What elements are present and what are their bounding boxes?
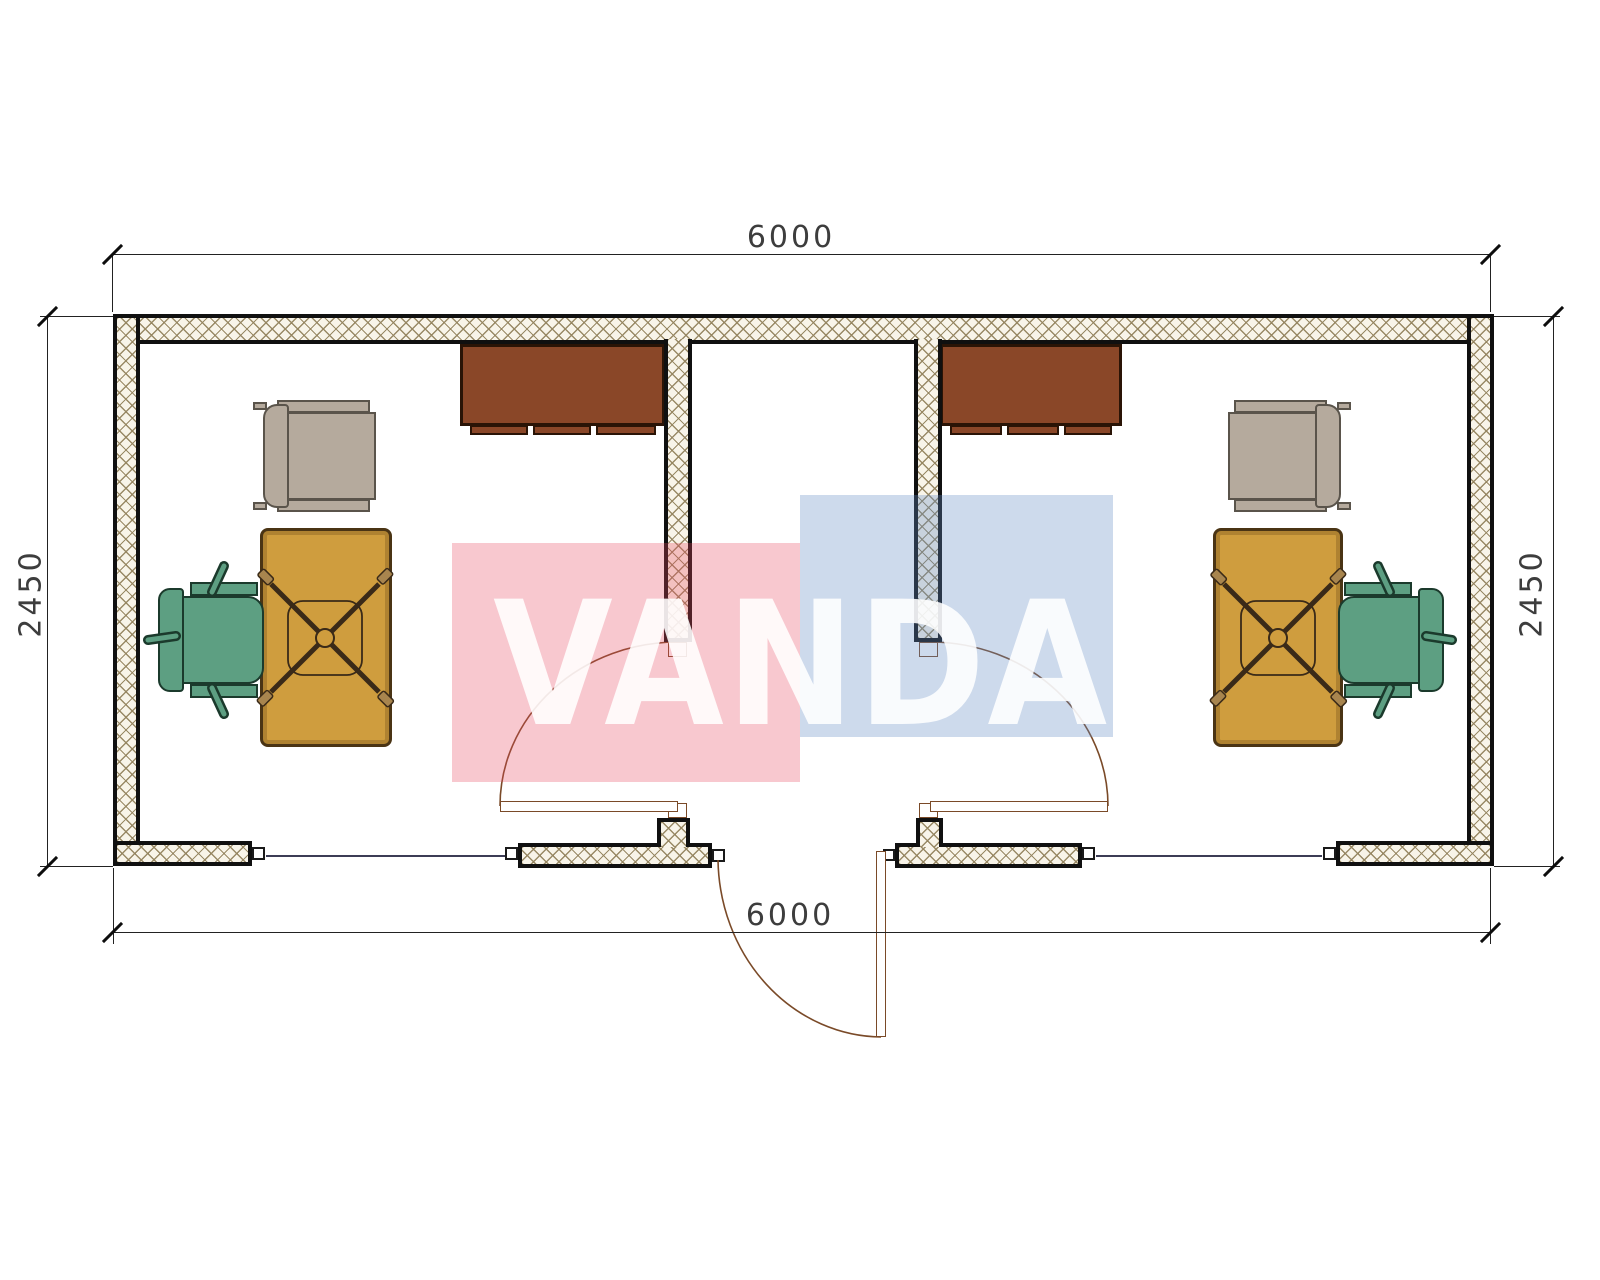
office-chair-back [1418,588,1444,692]
visitor-chair-back [263,404,289,508]
wall-bottom-left-corner [113,841,252,866]
wall-bottom-right-corner [1336,841,1494,866]
cabinet-door [1064,425,1112,435]
office-chair-armrest [190,582,258,596]
cabinet-door [533,425,591,435]
dim-label-bottom: 6000 [710,898,870,933]
cabinet [460,344,665,426]
visitor-chair-leg [1337,502,1351,510]
cabinet [940,344,1122,426]
dim-label-top: 6000 [711,220,871,255]
wall-left [113,314,140,866]
wall-right [1467,314,1494,866]
dim-line-right [1553,316,1554,866]
dim-ext [1490,254,1491,312]
window-jamb [505,847,518,860]
office-chair-armrest [1344,684,1412,698]
interior-door-leaf-right [930,801,1108,812]
exterior-door-leaf [876,851,886,1037]
dim-label-left: 2450 [14,514,49,674]
dim-ext [40,316,113,317]
window-jamb [1082,847,1095,860]
floor-plan-canvas: VANDA 6000 6000 2450 2450 [0,0,1600,1280]
wall-top [113,314,1494,344]
desk [260,528,392,747]
wall-stub-right [916,818,943,847]
office-chair-armrest [190,684,258,698]
window-jamb [252,847,265,860]
door-jamb [712,849,725,862]
dim-ext [40,866,113,867]
watermark-text: VANDA [491,579,1112,751]
office-chair-back [158,588,184,692]
visitor-chair-leg [1337,402,1351,410]
cabinet-door [1007,425,1059,435]
desk [1213,528,1343,747]
visitor-chair-seat [279,412,376,500]
office-chair-seat [176,596,264,684]
visitor-chair-armrest [1234,499,1327,512]
visitor-chair-back [1315,404,1341,508]
visitor-chair-seat [1228,412,1325,500]
office-chair-armrest [1344,582,1412,596]
cabinet-door [950,425,1002,435]
office-chair-seat [1338,596,1426,684]
dim-label-right: 2450 [1515,514,1550,674]
window-jamb [1323,847,1336,860]
visitor-chair-armrest [277,499,370,512]
interior-door-leaf-left [500,801,678,812]
visitor-chair-leg [253,502,267,510]
wall-stub-left [657,818,690,847]
dim-ext [112,254,113,312]
cabinet-door [596,425,656,435]
cabinet-door [470,425,528,435]
